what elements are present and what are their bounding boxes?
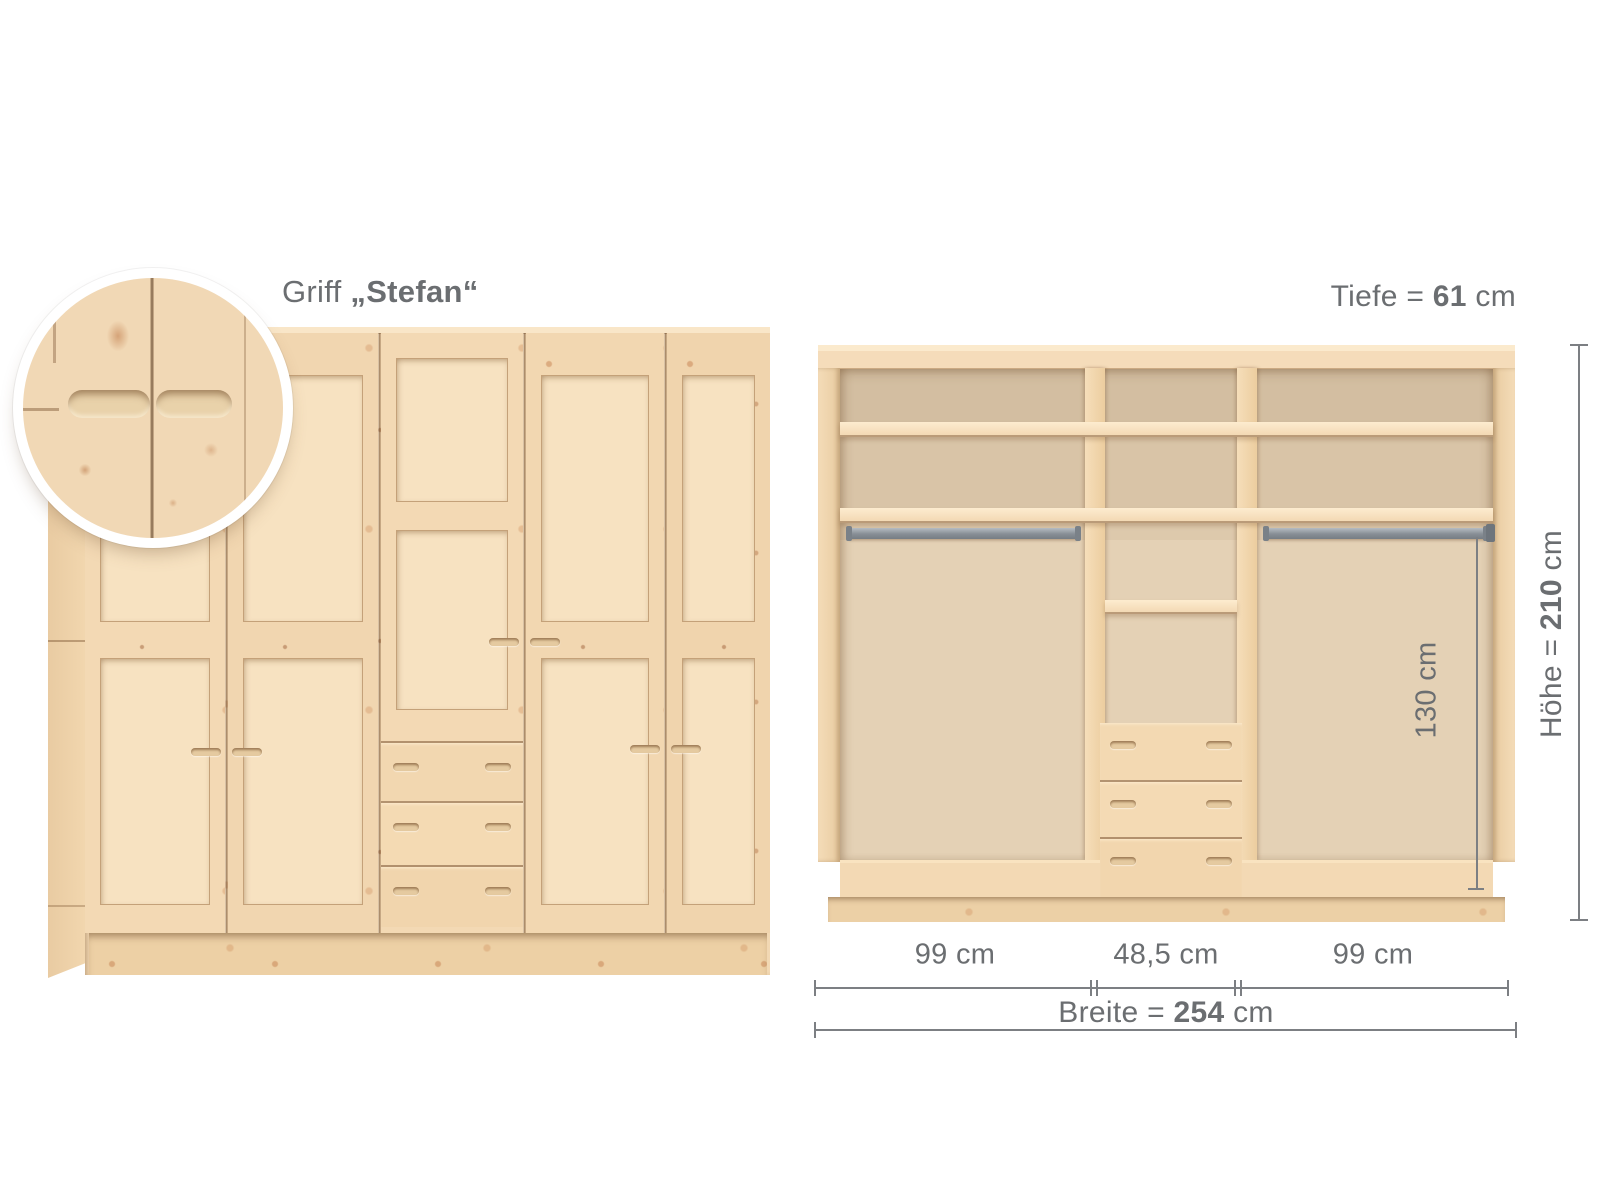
handle-slot bbox=[489, 638, 519, 646]
depth-unit: cm bbox=[1467, 280, 1516, 313]
drawer-handle-slot bbox=[485, 823, 511, 831]
compartment-width-value-3: 99 cm bbox=[1333, 939, 1413, 971]
closed-wardrobe-view: Griff „Stefan“ bbox=[0, 0, 800, 1200]
drawer-handle-slot bbox=[393, 763, 419, 771]
shelf-middle-section bbox=[1105, 600, 1237, 614]
open-wardrobe-view bbox=[818, 345, 1515, 922]
compartment-width-label-1: 99 cm bbox=[915, 939, 995, 972]
drawer-front-1 bbox=[381, 741, 523, 801]
shelf-top bbox=[840, 422, 1493, 437]
compartment-width-value-2: 48,5 cm bbox=[1113, 939, 1218, 971]
inner-height-label: 130 cm bbox=[1411, 642, 1444, 739]
total-width-prefix: Breite = bbox=[1058, 996, 1173, 1029]
wardrobe-drawer-column bbox=[381, 333, 523, 933]
interior-drawer-stack bbox=[1100, 723, 1242, 897]
drawer-handle-slot bbox=[1206, 857, 1232, 865]
interior-drawer-2 bbox=[1100, 780, 1242, 839]
panel-groove-line bbox=[53, 278, 56, 363]
drawer-handle-slot bbox=[1206, 741, 1232, 749]
door-panel-upper bbox=[396, 358, 508, 502]
inner-height-dimension-line bbox=[1476, 537, 1478, 890]
total-width-line bbox=[815, 1029, 1517, 1031]
dimension-tick bbox=[814, 980, 816, 996]
interior-drawer-1 bbox=[1100, 723, 1242, 780]
drawer-handle-slot bbox=[1206, 800, 1232, 808]
handle-detail-photo bbox=[23, 278, 283, 538]
total-width-unit: cm bbox=[1225, 996, 1274, 1029]
product-dimension-diagram: Griff „Stefan“ bbox=[0, 0, 1600, 1200]
inner-height-value: 130 cm bbox=[1411, 642, 1443, 739]
handle-detail-inset bbox=[13, 268, 293, 548]
height-value: 210 bbox=[1535, 579, 1568, 630]
depth-label-prefix: Tiefe = bbox=[1331, 280, 1433, 313]
door-panel-lower bbox=[682, 658, 755, 905]
wardrobe-plinth bbox=[89, 933, 767, 975]
wardrobe-door-5 bbox=[667, 333, 770, 933]
drawer-front-2 bbox=[381, 801, 523, 865]
depth-label: Tiefe = 61 cm bbox=[1331, 280, 1516, 314]
compartment-width-value-1: 99 cm bbox=[915, 939, 995, 971]
rail-end-bracket bbox=[1486, 524, 1495, 542]
handle-label-prefix: Griff bbox=[282, 274, 350, 309]
door-panel-lower bbox=[396, 530, 508, 710]
handle-slot bbox=[530, 638, 560, 646]
clothes-rail-right bbox=[1265, 528, 1487, 539]
dimension-tick bbox=[1570, 344, 1588, 346]
wardrobe-plinth bbox=[828, 897, 1505, 922]
handle-name-label: Griff „Stefan“ bbox=[282, 274, 479, 310]
handle-slot bbox=[630, 745, 660, 753]
door-panel-upper bbox=[682, 375, 755, 622]
drawer-handle-slot bbox=[485, 763, 511, 771]
door-gap-line bbox=[150, 278, 154, 538]
handle-slot-left bbox=[68, 390, 150, 418]
total-width-value: 254 bbox=[1174, 996, 1225, 1029]
drawer-handle-slot bbox=[1110, 857, 1136, 865]
handle-slot bbox=[232, 748, 262, 756]
height-label: Höhe = 210 cm bbox=[1535, 530, 1569, 738]
door-panel-lower bbox=[243, 658, 363, 905]
dimension-tick bbox=[1234, 980, 1236, 996]
handle-slot bbox=[671, 745, 701, 753]
shelf-second bbox=[840, 508, 1493, 523]
handle-name: „Stefan“ bbox=[350, 274, 478, 309]
top-rail bbox=[818, 345, 1515, 369]
height-dimension-line bbox=[1578, 345, 1580, 921]
height-label-prefix: Höhe = bbox=[1535, 630, 1568, 738]
drawer-handle-slot bbox=[393, 823, 419, 831]
dimension-tick bbox=[1240, 980, 1242, 996]
panel-groove-line bbox=[23, 408, 59, 411]
depth-value: 61 bbox=[1433, 280, 1467, 313]
dimension-tick bbox=[1515, 1022, 1517, 1038]
dimension-tick bbox=[1507, 980, 1509, 996]
dimension-tick bbox=[1090, 980, 1092, 996]
drawer-handle-slot bbox=[485, 887, 511, 895]
left-side-wall bbox=[818, 368, 840, 862]
dimension-tick bbox=[1096, 980, 1098, 996]
right-side-wall bbox=[1493, 368, 1515, 862]
panel-groove-line bbox=[244, 308, 246, 508]
total-width-label: Breite = 254 cm bbox=[1058, 996, 1273, 1030]
dimension-tick bbox=[1570, 919, 1588, 921]
drawer-handle-slot bbox=[1110, 800, 1136, 808]
interior-drawer-3 bbox=[1100, 837, 1242, 899]
handle-slot bbox=[191, 748, 221, 756]
compartment-width-label-2: 48,5 cm bbox=[1113, 939, 1218, 972]
clothes-rail-left bbox=[848, 528, 1079, 539]
door-panel-lower bbox=[541, 658, 649, 905]
width-segments-line bbox=[815, 987, 1508, 989]
handle-slot-right bbox=[156, 390, 232, 418]
door-panel-lower bbox=[100, 658, 210, 905]
compartment-width-label-3: 99 cm bbox=[1333, 939, 1413, 972]
drawer-handle-slot bbox=[393, 887, 419, 895]
dimension-tick bbox=[1468, 888, 1484, 890]
door-panel-upper bbox=[541, 375, 649, 622]
wardrobe-door-4 bbox=[526, 333, 664, 933]
height-unit: cm bbox=[1535, 530, 1568, 579]
drawer-handle-slot bbox=[1110, 741, 1136, 749]
dimension-tick bbox=[814, 1022, 816, 1038]
drawer-front-3 bbox=[381, 865, 523, 927]
